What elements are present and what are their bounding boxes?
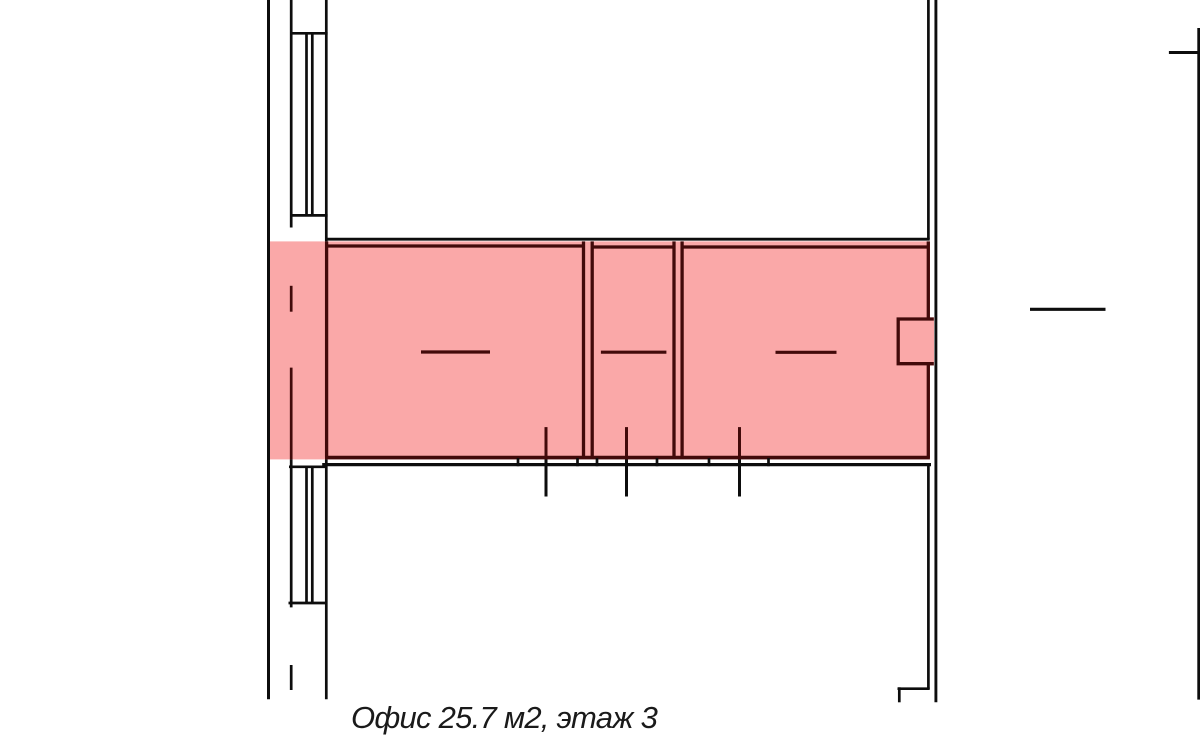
svg-text:Офис 25.7 м2, этаж 3: Офис 25.7 м2, этаж 3 [351, 700, 658, 735]
